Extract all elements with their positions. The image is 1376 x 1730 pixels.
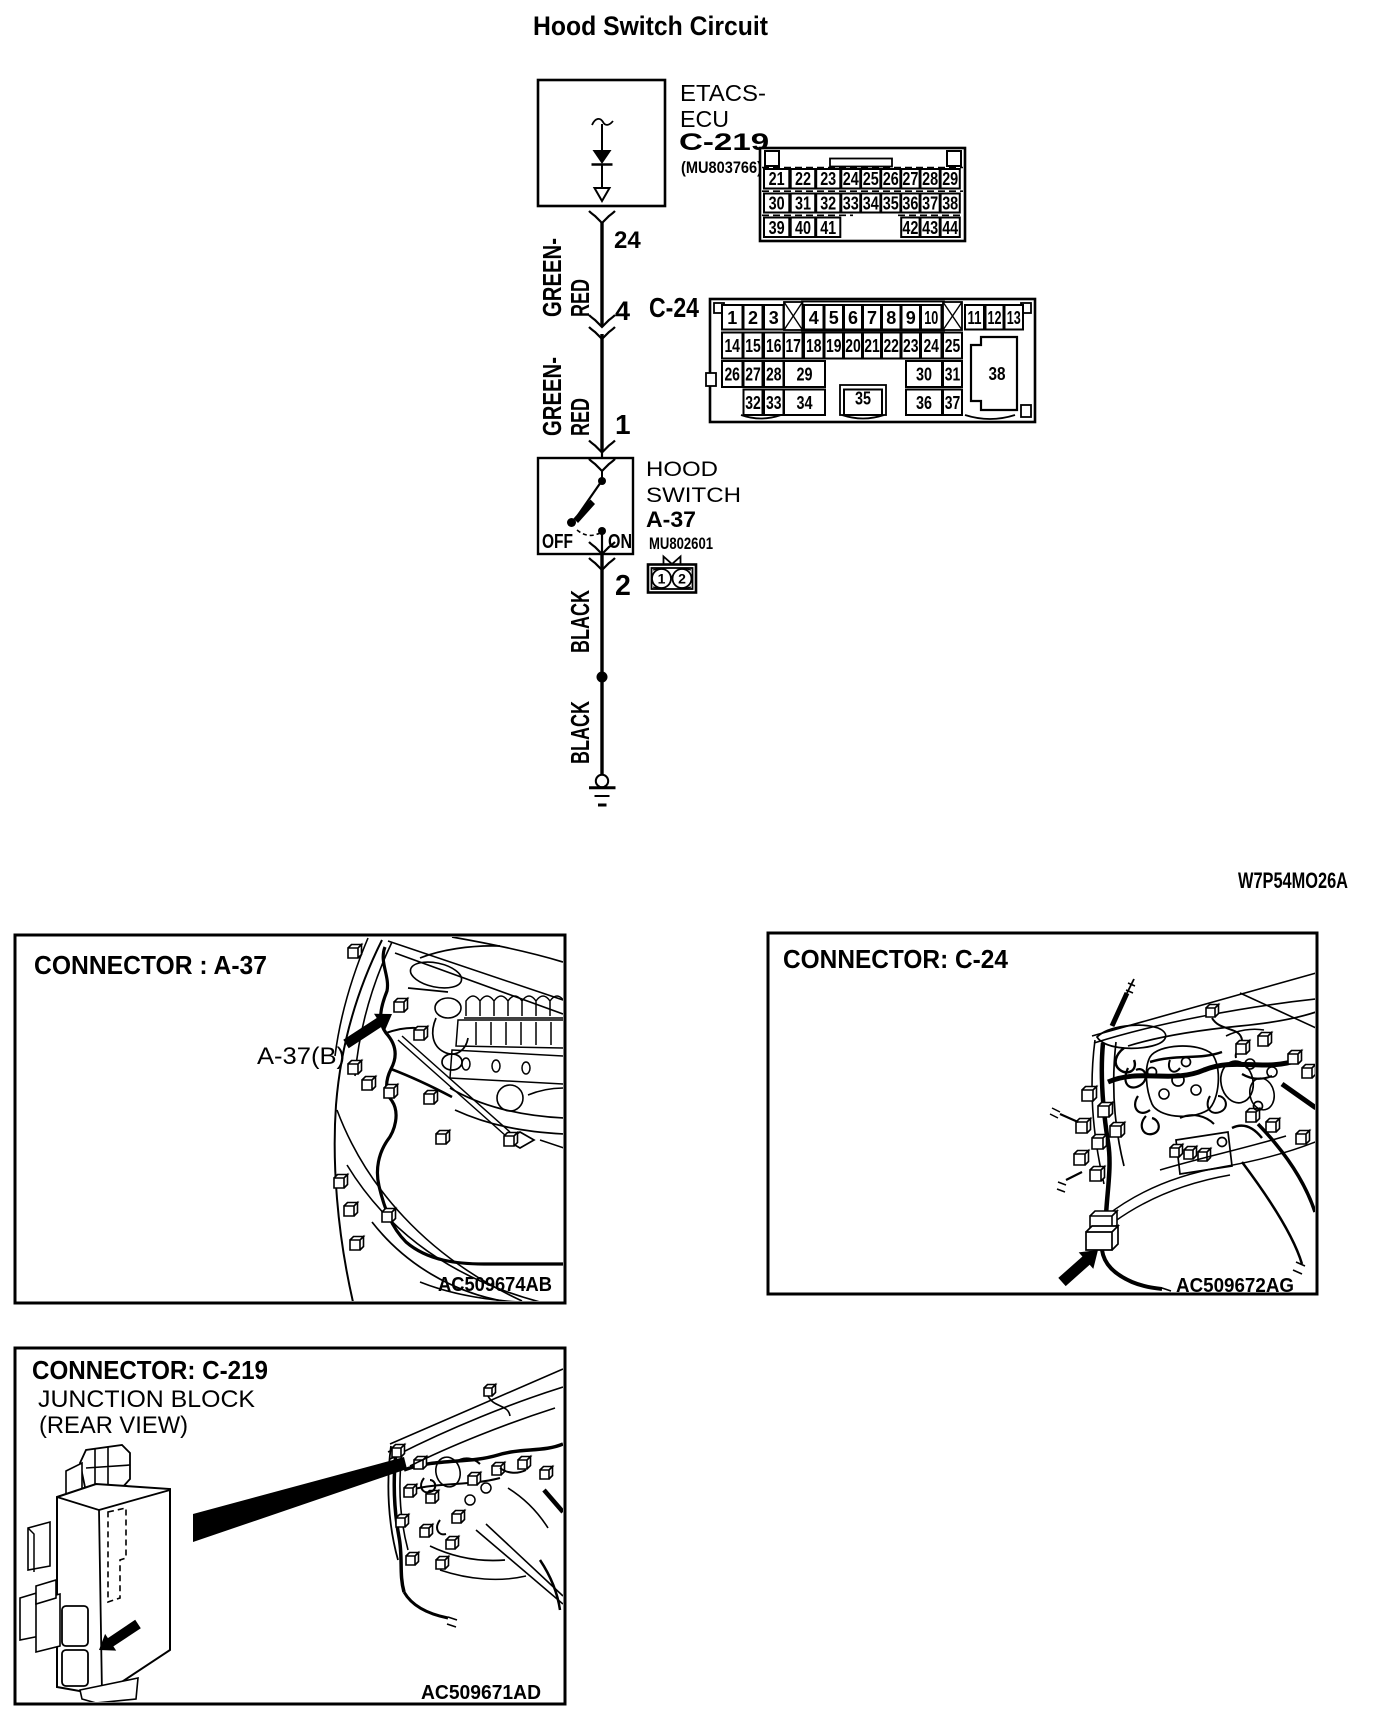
svg-text:19: 19: [826, 336, 842, 356]
svg-text:32: 32: [820, 194, 836, 214]
svg-text:28: 28: [922, 169, 938, 189]
svg-text:2: 2: [615, 570, 631, 602]
svg-text:Hood Switch Circuit: Hood Switch Circuit: [533, 11, 768, 41]
svg-text:4: 4: [615, 296, 630, 326]
svg-text:12: 12: [988, 308, 1002, 328]
svg-text:24: 24: [923, 336, 939, 356]
svg-text:5: 5: [829, 308, 839, 328]
svg-text:(MU803766): (MU803766): [681, 159, 762, 177]
svg-text:6: 6: [848, 308, 858, 328]
svg-text:23: 23: [820, 169, 836, 189]
svg-text:26: 26: [724, 365, 740, 385]
svg-text:38: 38: [942, 194, 958, 214]
svg-text:25: 25: [863, 169, 879, 189]
svg-text:27: 27: [745, 365, 761, 385]
svg-text:22: 22: [883, 336, 899, 356]
svg-text:25: 25: [945, 336, 961, 356]
svg-text:43: 43: [922, 218, 938, 238]
svg-text:14: 14: [724, 336, 740, 356]
svg-text:BLACK: BLACK: [565, 701, 595, 764]
svg-text:4: 4: [809, 308, 819, 328]
svg-text:39: 39: [769, 218, 785, 238]
svg-text:44: 44: [942, 218, 958, 238]
svg-text:21: 21: [864, 336, 880, 356]
svg-text:10: 10: [924, 308, 938, 328]
svg-text:SWITCH: SWITCH: [646, 484, 741, 507]
svg-text:24: 24: [843, 169, 859, 189]
svg-text:34: 34: [797, 393, 813, 413]
svg-text:CONNECTOR : A-37: CONNECTOR : A-37: [34, 950, 267, 980]
svg-text:26: 26: [883, 169, 899, 189]
svg-text:1: 1: [727, 308, 737, 328]
svg-text:2: 2: [748, 308, 758, 328]
svg-text:BLACK: BLACK: [565, 590, 595, 653]
svg-text:37: 37: [922, 194, 938, 214]
svg-text:ON: ON: [608, 531, 632, 553]
svg-text:20: 20: [845, 336, 861, 356]
svg-text:AC509674AB: AC509674AB: [438, 1274, 552, 1296]
svg-text:15: 15: [745, 336, 761, 356]
svg-text:23: 23: [903, 336, 919, 356]
svg-text:GREEN-: GREEN-: [537, 238, 567, 317]
svg-text:24: 24: [614, 227, 641, 254]
svg-text:OFF: OFF: [542, 531, 573, 553]
svg-text:17: 17: [785, 336, 801, 356]
svg-text:36: 36: [916, 393, 932, 413]
svg-text:42: 42: [902, 218, 918, 238]
svg-text:1: 1: [658, 571, 666, 587]
svg-text:16: 16: [766, 336, 782, 356]
svg-text:18: 18: [806, 336, 822, 356]
svg-text:2: 2: [678, 571, 686, 587]
svg-text:AC509671AD: AC509671AD: [421, 1682, 541, 1704]
svg-text:13: 13: [1007, 308, 1021, 328]
svg-text:30: 30: [769, 194, 785, 214]
svg-text:GREEN-: GREEN-: [537, 357, 567, 436]
svg-text:ETACS-: ETACS-: [680, 80, 766, 106]
svg-text:11: 11: [968, 308, 982, 328]
svg-text:40: 40: [795, 218, 811, 238]
svg-text:21: 21: [769, 169, 785, 189]
svg-text:RED: RED: [565, 279, 595, 317]
svg-text:C-24: C-24: [649, 292, 699, 323]
svg-text:8: 8: [886, 308, 896, 328]
svg-text:32: 32: [745, 393, 761, 413]
svg-text:35: 35: [855, 389, 871, 409]
svg-text:28: 28: [766, 365, 782, 385]
svg-text:C-219: C-219: [679, 129, 769, 156]
svg-text:A-37(B): A-37(B): [257, 1043, 345, 1070]
svg-text:JUNCTION BLOCK: JUNCTION BLOCK: [38, 1386, 255, 1413]
svg-text:33: 33: [766, 393, 782, 413]
svg-text:(REAR VIEW): (REAR VIEW): [39, 1412, 188, 1439]
svg-text:30: 30: [916, 365, 932, 385]
svg-text:CONNECTOR: C-219: CONNECTOR: C-219: [32, 1355, 268, 1385]
svg-text:ECU: ECU: [680, 106, 729, 132]
svg-text:33: 33: [843, 194, 859, 214]
svg-text:A-37: A-37: [646, 507, 696, 532]
svg-text:34: 34: [863, 194, 879, 214]
svg-text:29: 29: [942, 169, 958, 189]
svg-text:HOOD: HOOD: [646, 458, 718, 481]
svg-text:37: 37: [945, 393, 961, 413]
svg-text:1: 1: [615, 409, 631, 440]
svg-text:36: 36: [902, 194, 918, 214]
svg-text:31: 31: [795, 194, 811, 214]
svg-text:7: 7: [867, 308, 877, 328]
svg-text:9: 9: [906, 308, 916, 328]
svg-text:RED: RED: [565, 398, 595, 436]
svg-text:CONNECTOR: C-24: CONNECTOR: C-24: [783, 944, 1008, 974]
svg-text:31: 31: [945, 365, 961, 385]
svg-text:W7P54MO26A: W7P54MO26A: [1238, 868, 1348, 893]
svg-text:38: 38: [989, 364, 1006, 384]
svg-text:29: 29: [797, 365, 813, 385]
svg-text:27: 27: [902, 169, 918, 189]
svg-text:3: 3: [769, 308, 779, 328]
svg-text:AC509672AG: AC509672AG: [1176, 1275, 1294, 1297]
svg-text:41: 41: [820, 218, 836, 238]
svg-text:22: 22: [795, 169, 811, 189]
svg-text:35: 35: [883, 194, 899, 214]
svg-text:MU802601: MU802601: [649, 534, 713, 553]
